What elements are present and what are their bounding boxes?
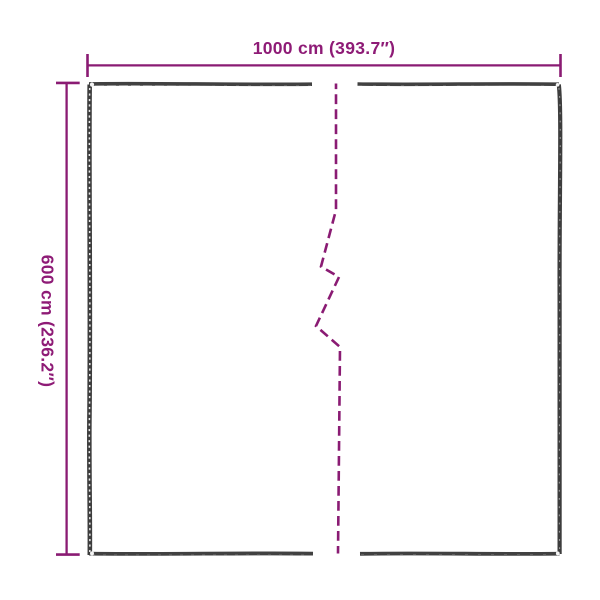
svg-text:1000 cm (393.7″): 1000 cm (393.7″) — [253, 38, 396, 58]
svg-text:600 cm (236.2″): 600 cm (236.2″) — [38, 255, 58, 388]
